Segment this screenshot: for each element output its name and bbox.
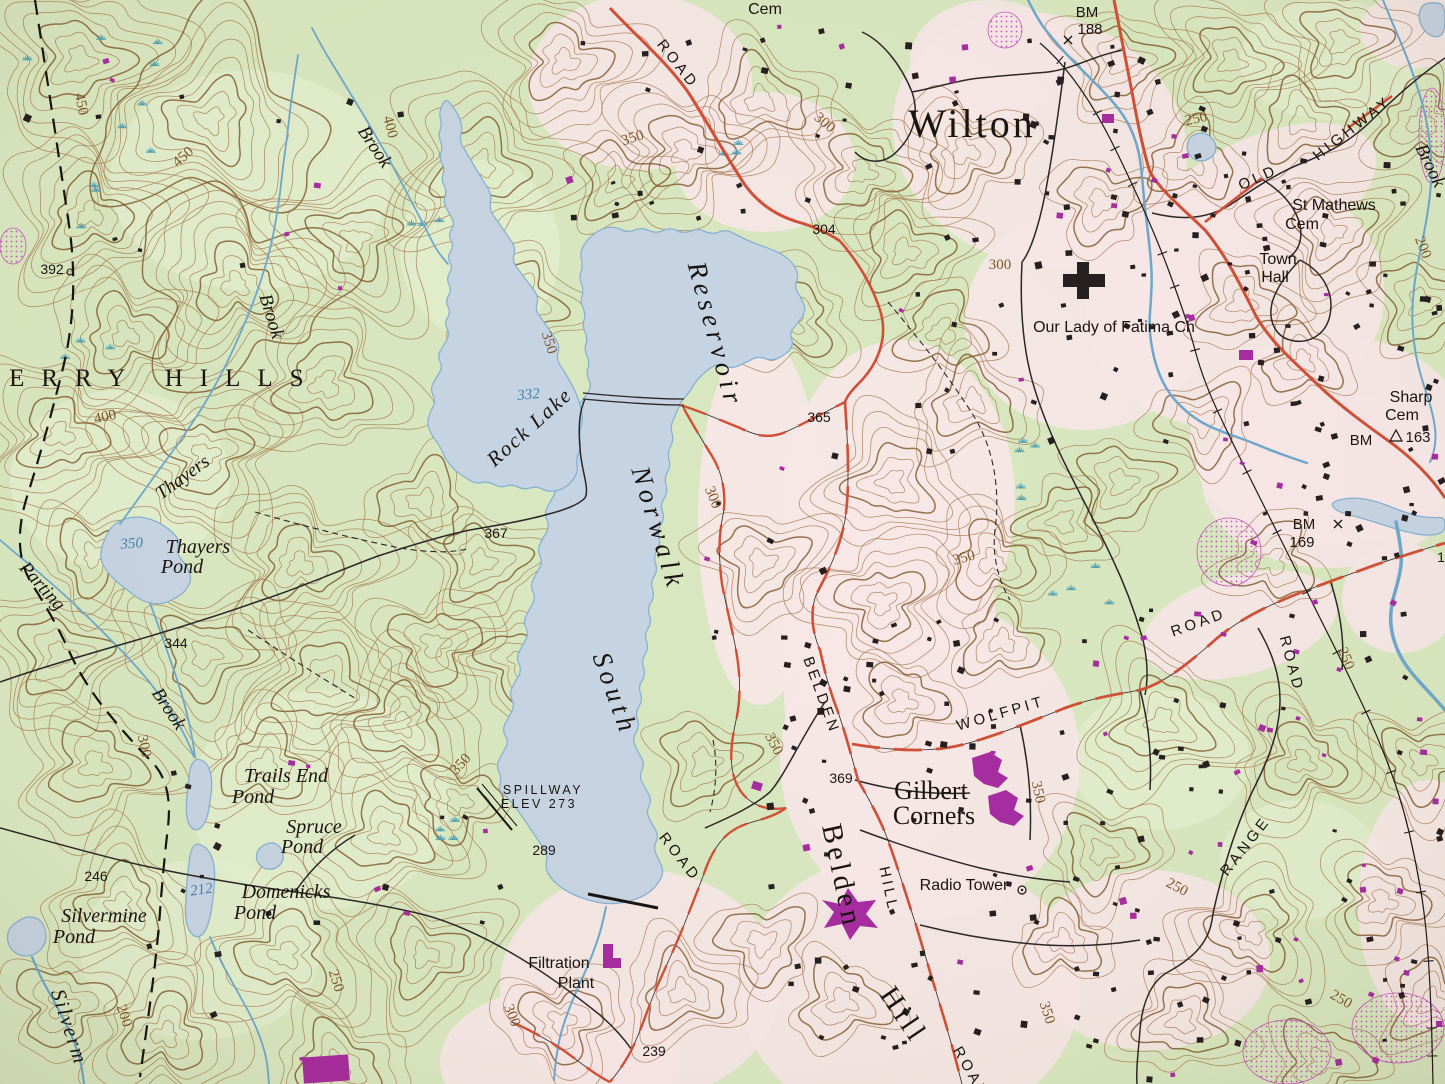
st-mathews-cem-1-label: St Mathews	[1292, 197, 1376, 214]
spillway-1-label: SPILLWAY	[503, 783, 583, 797]
topo-map-canvas: WiltonBERRY HILLSGilbertCornersBeldenHil…	[0, 0, 1445, 1084]
spot-369-label: 369	[829, 770, 853, 786]
domenicks-pond-2-label: Pond	[233, 902, 277, 924]
radio-tower-label: Radio Tower	[920, 877, 1009, 894]
spruce-pond	[256, 843, 283, 869]
town-hall-1-label: Town	[1259, 251, 1296, 268]
spot-304-label: 304	[812, 221, 836, 237]
contour-300-b-label: 300	[989, 257, 1012, 273]
trails-end-pond-2-label: Pond	[231, 786, 275, 808]
thayers-pond-2-label: Pond	[160, 556, 204, 578]
bm-188-2-label: 188	[1077, 21, 1102, 38]
edge-number-label: 1	[1437, 549, 1445, 565]
spot-246-label: 246	[84, 868, 108, 884]
st-mathews-cem-2-label: Cem	[1285, 216, 1319, 233]
bm-188-1-label: BM	[1076, 4, 1099, 21]
trails-end-pond-1-label: Trails End	[244, 765, 329, 787]
spot-344-label: 344	[164, 635, 188, 651]
spot-239-label: 239	[642, 1043, 666, 1059]
bm-163-2-label: 163	[1405, 429, 1430, 446]
town-hall-2-label: Hall	[1261, 269, 1289, 286]
fatima-church-label: Our Lady of Fatima Ch	[1033, 319, 1195, 336]
bm-169-1-label: BM	[1293, 516, 1316, 533]
spillway-2-label: ELEV 273	[501, 797, 577, 811]
water-elev-212-label: 212	[189, 880, 214, 899]
water-elev-350-label: 350	[119, 535, 144, 553]
spruce-pond-2-label: Pond	[280, 836, 324, 858]
silvermine-pond-2-label: Pond	[52, 926, 96, 948]
silvermine-pond-1-label: Silvermine	[61, 905, 147, 927]
bm-163-1-label: BM	[1350, 432, 1373, 449]
spot-392-label: 392	[40, 261, 64, 277]
cem-north-label: Cem	[748, 1, 782, 18]
berry-hills-label: BERRY HILLS	[0, 365, 321, 392]
bm-169-2-label: 169	[1289, 534, 1314, 551]
wilton-label: Wilton	[908, 101, 1036, 146]
spruce-pond-1-label: Spruce	[286, 816, 342, 838]
gilbert-corners-2-label: Corners	[893, 801, 975, 830]
water-elev-332-label: 332	[516, 386, 542, 404]
filtration-plant-2-label: Plant	[558, 975, 595, 992]
domenicks-pond-1-label: Domenicks	[241, 881, 331, 903]
sharp-cem-1-label: Sharp	[1390, 389, 1433, 406]
filtration-plant-1-label: Filtration	[528, 955, 589, 972]
topographic-map-photo: WiltonBERRY HILLSGilbertCornersBeldenHil…	[0, 0, 1445, 1084]
sharp-cem-2-label: Cem	[1385, 407, 1419, 424]
spot-367-label: 367	[484, 525, 508, 541]
spot-289-label: 289	[532, 842, 556, 858]
thayers-pond-1-label: Thayers	[166, 536, 231, 558]
spot-365-label: 365	[807, 409, 831, 425]
